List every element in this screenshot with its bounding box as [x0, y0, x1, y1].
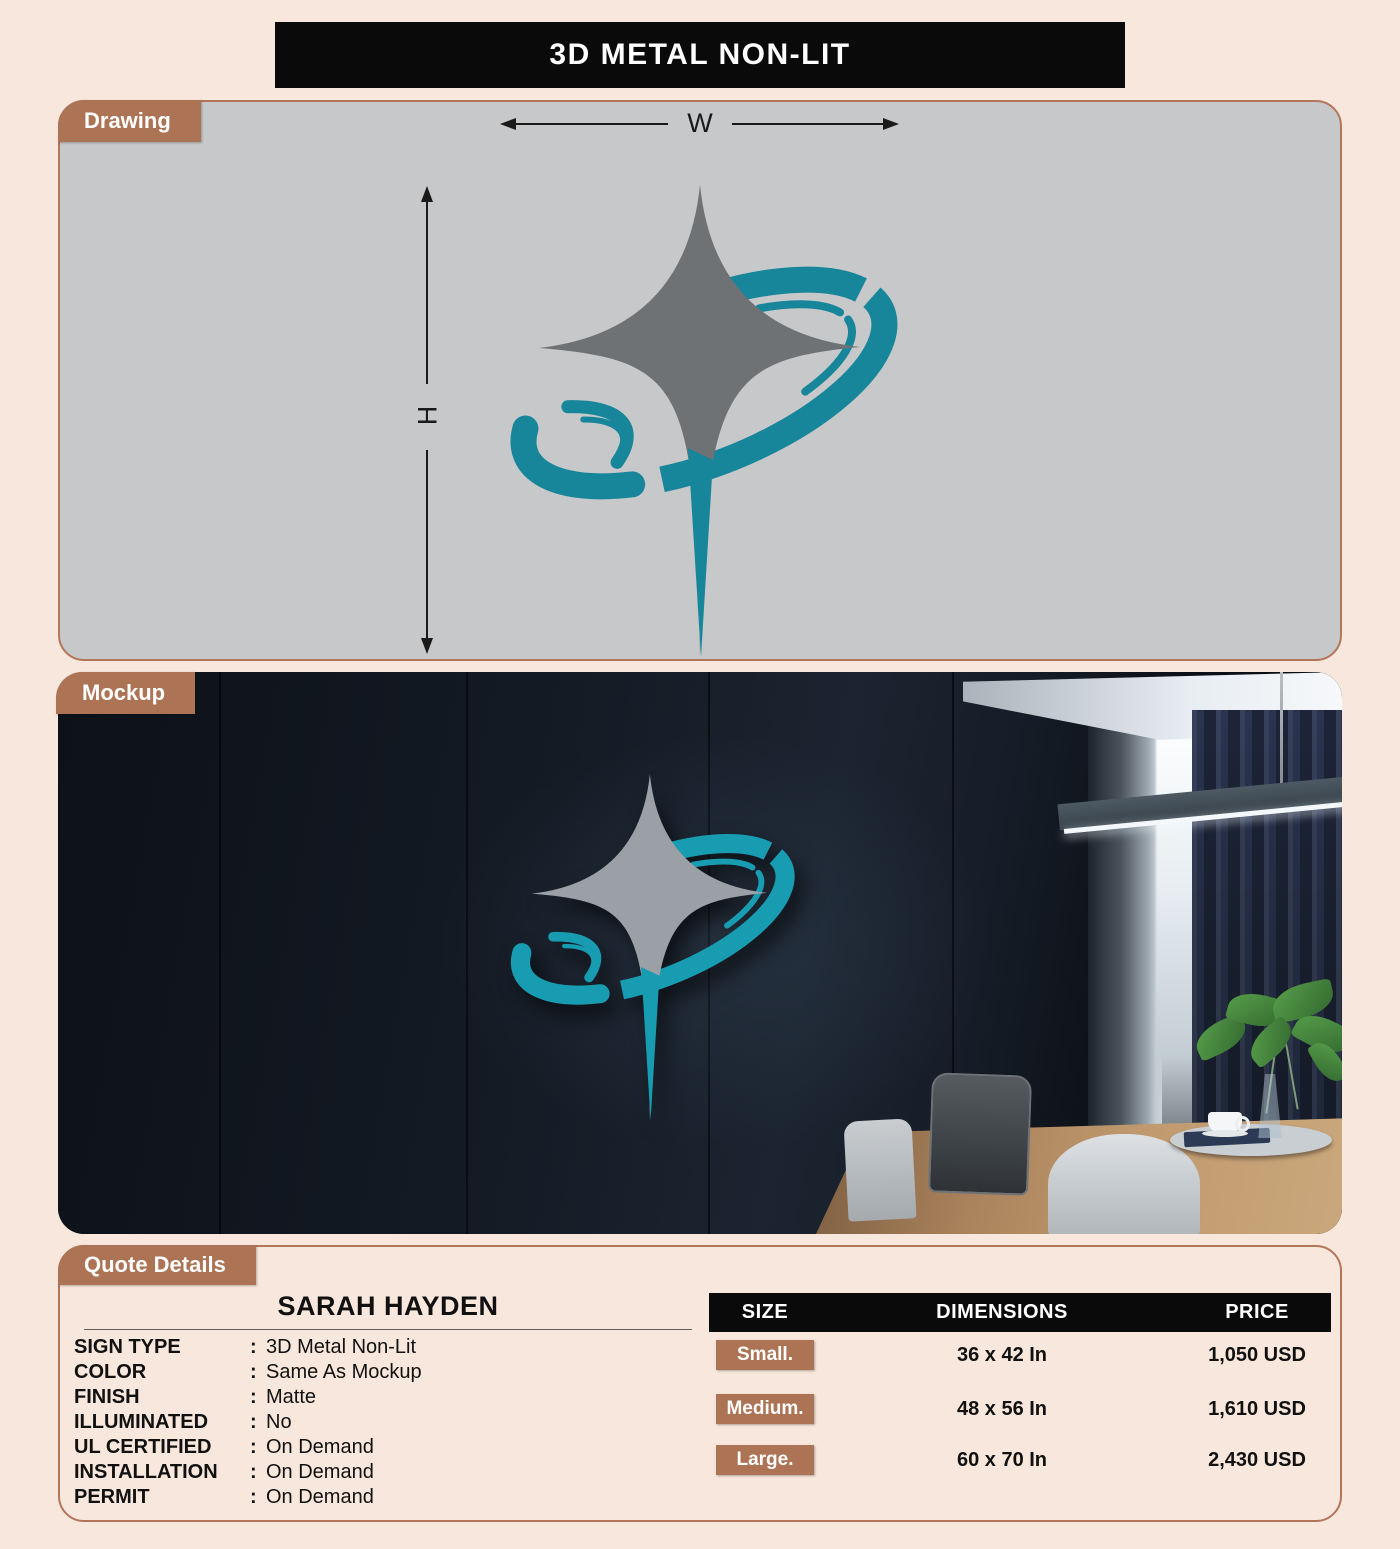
mockup-section-label: Mockup: [82, 680, 165, 706]
customer-divider: [84, 1329, 692, 1330]
pricing-header-size: SIZE: [709, 1301, 821, 1324]
mockup-scene: [58, 672, 1342, 1234]
wall-seam: [219, 672, 221, 1234]
detail-label: PERMIT: [74, 1485, 250, 1510]
size-badge: Small.: [716, 1340, 814, 1370]
size-badge: Medium.: [716, 1394, 814, 1424]
chair: [843, 1118, 916, 1221]
detail-label: UL CERTIFIED: [74, 1435, 250, 1460]
detail-value: No: [266, 1410, 702, 1435]
detail-value: On Demand: [266, 1435, 702, 1460]
detail-row: FINISH : Matte: [74, 1385, 702, 1410]
pricing-row-large: Large. 60 x 70 In 2,430 USD: [709, 1445, 1331, 1475]
pricing-row-small: Small. 36 x 42 In 1,050 USD: [709, 1340, 1331, 1370]
detail-value: 3D Metal Non-Lit: [266, 1335, 702, 1360]
detail-row: INSTALLATION : On Demand: [74, 1460, 702, 1485]
pricing-table: SIZE DIMENSIONS PRICE Small. 36 x 42 In …: [709, 1293, 1331, 1475]
chair: [1048, 1134, 1200, 1234]
detail-value: On Demand: [266, 1460, 702, 1485]
height-arrow-top-icon: [421, 186, 433, 202]
detail-value: Matte: [266, 1385, 702, 1410]
dimensions-value: 48 x 56 In: [821, 1398, 1183, 1421]
size-badge: Large.: [716, 1445, 814, 1475]
sign-logo-mockup: [490, 705, 820, 1185]
detail-separator: :: [250, 1360, 266, 1385]
width-dimension-label: W: [670, 108, 730, 139]
pricing-header-price: PRICE: [1183, 1301, 1331, 1324]
price-value: 1,610 USD: [1183, 1398, 1331, 1421]
detail-row: PERMIT : On Demand: [74, 1485, 702, 1510]
page-title: 3D METAL NON-LIT: [549, 38, 850, 72]
mockup-panel: Mockup: [58, 672, 1342, 1234]
detail-separator: :: [250, 1460, 266, 1485]
detail-label: COLOR: [74, 1360, 250, 1385]
pricing-row-medium: Medium. 48 x 56 In 1,610 USD: [709, 1394, 1331, 1424]
detail-separator: :: [250, 1485, 266, 1510]
width-arrow-right-icon: [883, 118, 899, 130]
detail-separator: :: [250, 1335, 266, 1360]
customer-name: SARAH HAYDEN: [80, 1291, 696, 1322]
plant: [1176, 984, 1342, 1094]
customer-block: SARAH HAYDEN: [80, 1291, 696, 1330]
drawing-panel: Drawing W H: [58, 100, 1342, 661]
pricing-header-row: SIZE DIMENSIONS PRICE: [709, 1293, 1331, 1332]
price-value: 2,430 USD: [1183, 1449, 1331, 1472]
width-arrow-left-icon: [500, 118, 516, 130]
price-value: 1,050 USD: [1183, 1344, 1331, 1367]
dimensions-value: 36 x 42 In: [821, 1344, 1183, 1367]
detail-separator: :: [250, 1435, 266, 1460]
coffee-cup: [1208, 1112, 1242, 1133]
quote-section-tag: Quote Details: [58, 1245, 256, 1285]
detail-label: INSTALLATION: [74, 1460, 250, 1485]
detail-row: ILLUMINATED : No: [74, 1410, 702, 1435]
pricing-header-dimensions: DIMENSIONS: [821, 1301, 1183, 1324]
detail-value: On Demand: [266, 1485, 702, 1510]
dimensions-value: 60 x 70 In: [821, 1449, 1183, 1472]
height-dimension-label: H: [413, 388, 444, 444]
drawing-section-tag: Drawing: [58, 100, 201, 142]
quote-details-panel: Quote Details SARAH HAYDEN SIGN TYPE : 3…: [58, 1245, 1342, 1522]
detail-separator: :: [250, 1385, 266, 1410]
quote-sheet: 3D METAL NON-LIT Drawing W H: [0, 0, 1400, 1549]
drawing-section-label: Drawing: [84, 108, 171, 134]
detail-row: COLOR : Same As Mockup: [74, 1360, 702, 1385]
detail-label: ILLUMINATED: [74, 1410, 250, 1435]
detail-label: FINISH: [74, 1385, 250, 1410]
detail-label: SIGN TYPE: [74, 1335, 250, 1360]
quote-detail-list: SIGN TYPE : 3D Metal Non-Lit COLOR : Sam…: [74, 1335, 702, 1510]
sign-logo-drawing: [482, 168, 932, 668]
chair: [928, 1072, 1032, 1195]
height-arrow-bottom-icon: [421, 638, 433, 654]
detail-row: UL CERTIFIED : On Demand: [74, 1435, 702, 1460]
mockup-section-tag: Mockup: [56, 672, 195, 714]
title-banner: 3D METAL NON-LIT: [275, 22, 1125, 88]
detail-value: Same As Mockup: [266, 1360, 702, 1385]
quote-section-label: Quote Details: [84, 1252, 226, 1278]
detail-separator: :: [250, 1410, 266, 1435]
detail-row: SIGN TYPE : 3D Metal Non-Lit: [74, 1335, 702, 1360]
